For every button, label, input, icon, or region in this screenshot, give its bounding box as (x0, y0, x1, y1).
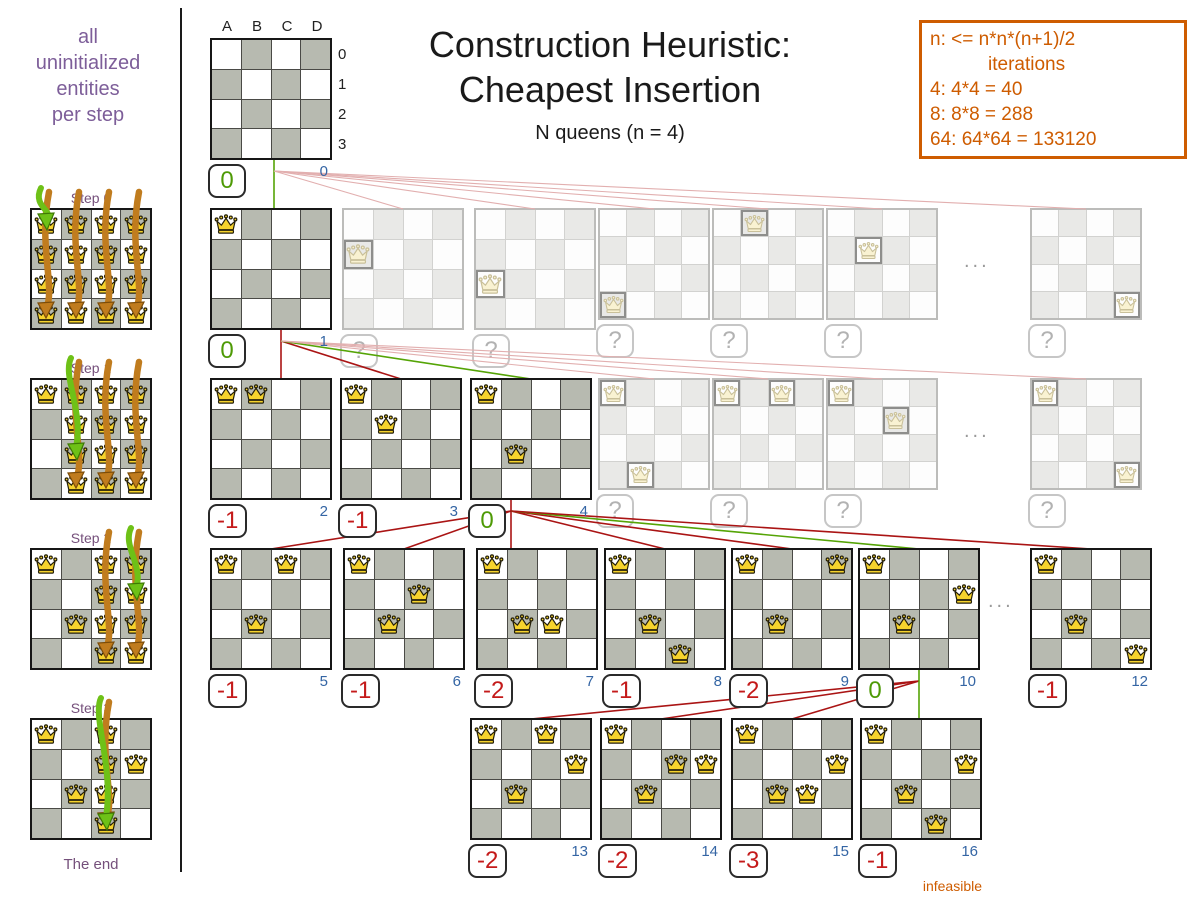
chessboard-r2b7 (1030, 378, 1142, 490)
board-cell (796, 210, 822, 236)
board-cell (301, 469, 330, 498)
iteration-number-r4b2: 14 (600, 843, 718, 860)
board-cell (532, 809, 561, 838)
board-cell (242, 580, 271, 609)
board-cell (32, 809, 61, 838)
board-cell (1092, 550, 1121, 579)
iteration-number-r4b4: 16 (860, 843, 978, 860)
board-cell (476, 270, 505, 299)
board-cell (374, 270, 403, 299)
board-cell (92, 410, 121, 439)
board-cell (538, 610, 567, 639)
board-cell (655, 210, 681, 236)
board-cell (769, 292, 795, 318)
iteration-number-r2b3: 4 (470, 503, 588, 520)
board-cell (1121, 610, 1150, 639)
board-cell (561, 750, 590, 779)
board-cell (62, 270, 91, 299)
board-cell (627, 210, 653, 236)
board-cell (212, 469, 241, 498)
board-cell (121, 610, 150, 639)
queen-icon (34, 302, 58, 326)
board-cell (627, 265, 653, 291)
queen-icon (478, 272, 502, 296)
board-cell (404, 270, 433, 299)
board-cell (910, 462, 936, 488)
queen-icon (274, 552, 298, 576)
board-cell (1087, 435, 1113, 461)
board-cell (212, 129, 241, 158)
board-cell (62, 580, 91, 609)
board-cell (532, 720, 561, 749)
iteration-number-root: 0 (210, 163, 328, 180)
board-cell (600, 292, 626, 318)
board-cell (242, 380, 271, 409)
board-cell (1032, 210, 1058, 236)
vertical-divider (180, 8, 182, 872)
board-cell (1087, 210, 1113, 236)
board-cell (212, 580, 241, 609)
board-cell (532, 380, 561, 409)
queen-icon (638, 612, 662, 636)
board-cell (855, 435, 881, 461)
board-cell (92, 440, 121, 469)
board-cell (890, 550, 919, 579)
chessboard-step2 (30, 548, 152, 670)
board-cell (375, 550, 404, 579)
board-cell (342, 440, 371, 469)
board-cell (242, 469, 271, 498)
board-cell (769, 462, 795, 488)
board-cell (1032, 580, 1061, 609)
queen-icon (407, 582, 431, 606)
board-cell (1114, 210, 1140, 236)
board-cell (1087, 265, 1113, 291)
board-cell (662, 750, 691, 779)
board-cell (561, 380, 590, 409)
board-cell (951, 780, 980, 809)
board-cell (769, 210, 795, 236)
board-cell (506, 210, 535, 239)
board-cell (691, 720, 720, 749)
board-cell (733, 809, 762, 838)
sidebar-caption-line: per step (4, 102, 172, 128)
board-cell (538, 639, 567, 668)
board-cell (502, 809, 531, 838)
board-cell (1059, 265, 1085, 291)
queen-icon (124, 612, 148, 636)
board-cell (763, 550, 792, 579)
queen-icon (924, 812, 948, 836)
board-cell (212, 210, 241, 239)
board-cell (602, 809, 631, 838)
board-cell (682, 292, 708, 318)
board-cell (682, 462, 708, 488)
board-cell (301, 639, 330, 668)
queen-icon (894, 782, 918, 806)
board-cell (691, 780, 720, 809)
queen-icon (64, 272, 88, 296)
board-cell (1121, 550, 1150, 579)
board-cell (92, 240, 121, 269)
board-cell (636, 610, 665, 639)
board-cell (32, 720, 61, 749)
row-label-1: 1 (338, 76, 346, 93)
board-cell (272, 129, 301, 158)
board-cell (301, 270, 330, 299)
queen-icon (34, 552, 58, 576)
board-cell (301, 299, 330, 328)
board-cell (565, 270, 594, 299)
board-cell (822, 750, 851, 779)
chessboard-r1b5 (712, 208, 824, 320)
board-cell (212, 270, 241, 299)
chessboard-r1b7 (1030, 208, 1142, 320)
queen-icon (124, 212, 148, 236)
board-cell (472, 380, 501, 409)
board-cell (691, 750, 720, 779)
board-cell (567, 550, 596, 579)
board-cell (212, 100, 241, 129)
board-cell (344, 210, 373, 239)
board-cell (682, 265, 708, 291)
board-cell (890, 610, 919, 639)
board-cell (121, 720, 150, 749)
board-cell (345, 639, 374, 668)
board-cell (301, 210, 330, 239)
iteration-number-r2b1: 2 (210, 503, 328, 520)
score-badge-r1b2: ? (340, 334, 378, 368)
board-cell (855, 462, 881, 488)
board-cell (272, 380, 301, 409)
queen-icon (668, 642, 692, 666)
board-cell (606, 550, 635, 579)
board-cell (822, 780, 851, 809)
queen-icon (534, 722, 558, 746)
info-line: 4: 4*4 = 40 (930, 77, 1176, 102)
board-cell (769, 265, 795, 291)
queen-icon (64, 302, 88, 326)
board-cell (272, 410, 301, 439)
board-cell (666, 610, 695, 639)
board-cell (602, 750, 631, 779)
board-cell (32, 380, 61, 409)
board-cell (92, 720, 121, 749)
score-badge-r2b6: ? (824, 494, 862, 528)
iteration-number-r3b3: 7 (476, 673, 594, 690)
board-cell (1114, 380, 1140, 406)
queen-icon (124, 582, 148, 606)
board-cell (345, 580, 374, 609)
board-cell (883, 380, 909, 406)
queen-icon (124, 302, 148, 326)
row-label-2: 2 (338, 106, 346, 123)
board-cell (405, 550, 434, 579)
board-cell (532, 410, 561, 439)
queen-icon (94, 382, 118, 406)
score-badge-r1b4: ? (596, 324, 634, 358)
board-cell (478, 610, 507, 639)
board-cell (1062, 580, 1091, 609)
board-cell (682, 237, 708, 263)
board-cell (472, 780, 501, 809)
queen-icon (124, 472, 148, 496)
board-cell (922, 809, 951, 838)
board-cell (763, 750, 792, 779)
board-cell (883, 407, 909, 433)
column-label-B: B (242, 18, 272, 35)
board-cell (600, 407, 626, 433)
board-cell (714, 237, 740, 263)
board-cell (272, 550, 301, 579)
board-cell (532, 780, 561, 809)
board-cell (1114, 462, 1140, 488)
board-cell (855, 407, 881, 433)
board-cell (627, 462, 653, 488)
queen-icon (744, 213, 765, 234)
queen-icon (34, 722, 58, 746)
board-cell (828, 237, 854, 263)
board-cell (733, 580, 762, 609)
queen-icon (474, 382, 498, 406)
board-cell (714, 435, 740, 461)
board-cell (404, 210, 433, 239)
board-cell (796, 435, 822, 461)
board-cell (860, 580, 889, 609)
board-cell (433, 299, 462, 328)
queen-icon (735, 552, 759, 576)
queen-icon (603, 294, 624, 315)
board-cell (242, 100, 271, 129)
queen-icon (64, 472, 88, 496)
board-cell (860, 639, 889, 668)
board-cell (855, 380, 881, 406)
board-cell (212, 70, 241, 99)
board-cell (502, 410, 531, 439)
board-cell (508, 550, 537, 579)
board-cell (272, 210, 301, 239)
board-cell (910, 237, 936, 263)
board-cell (502, 780, 531, 809)
queen-icon (34, 272, 58, 296)
board-cell (822, 809, 851, 838)
board-cell (822, 550, 851, 579)
queen-icon (214, 552, 238, 576)
iteration-number-r3b1: 5 (210, 673, 328, 690)
tree-edge-pink (281, 341, 1086, 379)
board-cell (796, 380, 822, 406)
queen-icon (1034, 552, 1058, 576)
board-cell (1032, 462, 1058, 488)
board-cell (374, 240, 403, 269)
board-cell (666, 639, 695, 668)
chessboard-r2b5 (712, 378, 824, 490)
board-cell (682, 407, 708, 433)
board-cell (627, 380, 653, 406)
board-cell (1032, 292, 1058, 318)
board-cell (822, 610, 851, 639)
board-cell (763, 720, 792, 749)
board-cell (741, 380, 767, 406)
chessboard-r2b4 (598, 378, 710, 490)
board-cell (121, 380, 150, 409)
board-cell (121, 440, 150, 469)
board-cell (92, 780, 121, 809)
board-cell (741, 292, 767, 318)
board-cell (741, 237, 767, 263)
board-cell (242, 210, 271, 239)
board-cell (272, 299, 301, 328)
queen-icon (564, 752, 588, 776)
board-cell (602, 720, 631, 749)
board-cell (662, 809, 691, 838)
board-cell (506, 240, 535, 269)
iteration-number-r1b1: 1 (210, 333, 328, 350)
board-cell (561, 410, 590, 439)
iteration-number-r4b1: 13 (470, 843, 588, 860)
board-cell (212, 639, 241, 668)
iteration-number-r3b4: 8 (604, 673, 722, 690)
board-cell (434, 550, 463, 579)
board-cell (92, 809, 121, 838)
board-cell (828, 380, 854, 406)
board-cell (536, 270, 565, 299)
queen-icon (862, 552, 886, 576)
step-label-1: Step 1 (30, 360, 152, 376)
sidebar-caption: all uninitialized entities per step (4, 24, 172, 128)
queen-icon (1124, 642, 1148, 666)
board-cell (655, 407, 681, 433)
board-cell (62, 610, 91, 639)
board-cell (1032, 550, 1061, 579)
chessboard-r2b6 (826, 378, 938, 490)
board-cell (92, 580, 121, 609)
board-cell (344, 240, 373, 269)
queen-icon (34, 212, 58, 236)
board-cell (855, 210, 881, 236)
board-cell (1087, 292, 1113, 318)
queen-icon (604, 722, 628, 746)
queen-icon (94, 722, 118, 746)
board-cell (212, 40, 241, 69)
board-cell (272, 440, 301, 469)
board-cell (828, 292, 854, 318)
iteration-number-r4b3: 15 (731, 843, 849, 860)
page-title-line1: Construction Heuristic: (345, 22, 875, 67)
queen-icon (64, 442, 88, 466)
board-cell (920, 550, 949, 579)
board-cell (561, 720, 590, 749)
board-cell (344, 270, 373, 299)
board-cell (301, 410, 330, 439)
board-cell (910, 210, 936, 236)
board-cell (600, 435, 626, 461)
board-cell (342, 380, 371, 409)
board-cell (121, 240, 150, 269)
queen-icon (795, 782, 819, 806)
board-cell (242, 40, 271, 69)
board-cell (1092, 580, 1121, 609)
chessboard-step1 (30, 378, 152, 500)
board-cell (600, 237, 626, 263)
queen-icon (214, 382, 238, 406)
board-cell (431, 410, 460, 439)
board-cell (301, 70, 330, 99)
step-label-0: Step 0 (30, 190, 152, 206)
chessboard-r1b3 (474, 208, 596, 330)
board-cell (890, 639, 919, 668)
board-cell (121, 780, 150, 809)
chessboard-r1b1 (210, 208, 332, 330)
column-label-C: C (272, 18, 302, 35)
board-cell (682, 380, 708, 406)
board-cell (1032, 407, 1058, 433)
score-badge-r2b5: ? (710, 494, 748, 528)
iterations-info-box: n: <= n*n*(n+1)/2 iterations 4: 4*4 = 40… (919, 20, 1187, 159)
board-cell (682, 435, 708, 461)
queen-icon (864, 722, 888, 746)
board-cell (565, 210, 594, 239)
board-cell (1059, 292, 1085, 318)
queen-icon (892, 612, 916, 636)
board-cell (714, 407, 740, 433)
board-cell (434, 639, 463, 668)
queen-icon (540, 612, 564, 636)
board-cell (695, 610, 724, 639)
queen-icon (244, 612, 268, 636)
board-cell (1032, 610, 1061, 639)
queen-icon (64, 612, 88, 636)
board-cell (121, 750, 150, 779)
the-end-label: The end (28, 856, 154, 873)
queen-icon (94, 752, 118, 776)
board-cell (1092, 639, 1121, 668)
board-cell (733, 720, 762, 749)
board-cell (1059, 210, 1085, 236)
board-cell (502, 750, 531, 779)
board-cell (32, 299, 61, 328)
chessboard-r3b2 (343, 548, 465, 670)
board-cell (1114, 237, 1140, 263)
board-cell (606, 580, 635, 609)
board-cell (1032, 237, 1058, 263)
board-cell (301, 580, 330, 609)
board-cell (1032, 435, 1058, 461)
queen-icon (344, 382, 368, 406)
board-cell (910, 407, 936, 433)
board-cell (433, 240, 462, 269)
board-cell (910, 380, 936, 406)
board-cell (561, 780, 590, 809)
board-cell (1059, 407, 1085, 433)
board-cell (1032, 639, 1061, 668)
chessboard-r4b3 (731, 718, 853, 840)
chessboard-r1b6 (826, 208, 938, 320)
board-cell (431, 469, 460, 498)
sidebar-caption-line: entities (4, 76, 172, 102)
queen-icon (124, 242, 148, 266)
queen-icon (34, 382, 58, 406)
queen-icon (1116, 464, 1137, 485)
board-cell (796, 237, 822, 263)
board-cell (402, 469, 431, 498)
board-cell (476, 299, 505, 328)
board-cell (1059, 462, 1085, 488)
board-cell (242, 70, 271, 99)
board-cell (565, 240, 594, 269)
board-cell (301, 550, 330, 579)
board-cell (828, 210, 854, 236)
